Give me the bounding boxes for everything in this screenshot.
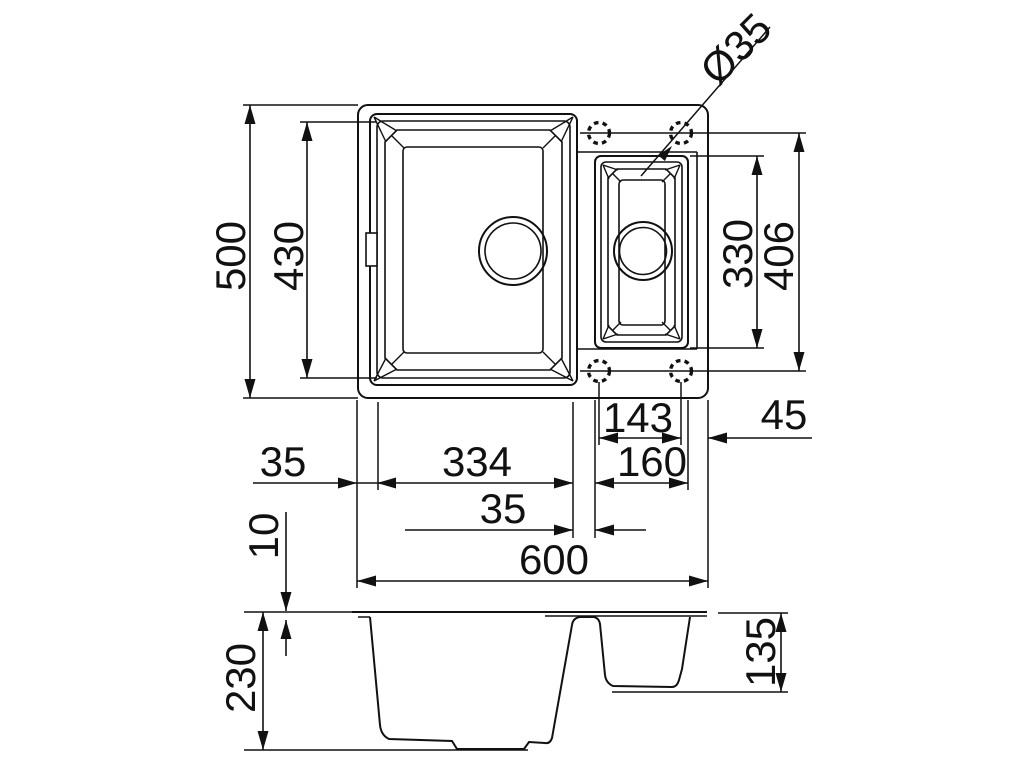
- sink-dimension-drawing: Ø35 500 430 330 406: [0, 0, 1024, 768]
- half-bowl-bottom: [619, 180, 665, 325]
- top-view: Ø35: [358, 4, 780, 398]
- dim-label-tap-span-width: 143: [603, 394, 673, 441]
- dim-bowl-width: 334: [377, 402, 573, 538]
- dim-label-rim-thickness: 10: [240, 513, 287, 560]
- dim-label-half-bowl-length: 330: [714, 219, 761, 289]
- side-view: 10 230 135: [217, 512, 788, 750]
- dim-label-bowl-width: 334: [442, 438, 512, 485]
- main-drain-outer: [479, 217, 547, 285]
- main-bowl-rim-outer: [370, 114, 577, 385]
- sink-outer-edge: [358, 105, 708, 398]
- dim-label-half-bowl-height: 135: [737, 617, 784, 687]
- half-drain-inner: [620, 228, 667, 275]
- main-bowl-bottom: [403, 147, 543, 353]
- dim-total-height: 230: [217, 612, 264, 750]
- dim-label-half-bowl-width: 160: [617, 438, 687, 485]
- dim-label-total-height: 230: [217, 643, 264, 713]
- dim-label-overall-width: 600: [519, 536, 589, 583]
- dim-label-bowl-gap: 35: [480, 485, 527, 532]
- dim-label-overall-depth: 500: [207, 221, 254, 291]
- dim-half-bowl-height: 135: [718, 613, 788, 692]
- rim-bottom-edge: [358, 616, 707, 617]
- main-bowl-slope-top: [385, 130, 562, 370]
- main-bowl: [366, 114, 577, 385]
- dim-left-rim: 35: [253, 438, 377, 485]
- dim-label-bowl-length: 430: [265, 221, 312, 291]
- half-bowl-rim-outer: [595, 156, 688, 348]
- dim-label-tap-span-depth: 406: [755, 221, 802, 291]
- dim-bowl-length: 430: [265, 122, 377, 378]
- main-drain-inner: [485, 223, 541, 279]
- hole-diameter-callout: Ø35: [641, 4, 780, 176]
- drawing-canvas: Ø35 500 430 330 406: [0, 0, 1024, 768]
- dim-edge-to-tap: 45: [708, 391, 812, 438]
- dim-bowl-gap: 35: [405, 485, 646, 532]
- half-drain-outer: [614, 222, 672, 280]
- dim-tap-span-width: 143: [599, 382, 681, 445]
- overflow-slot: [366, 233, 377, 266]
- dim-half-bowl-length: 330: [690, 156, 764, 348]
- dim-label-edge-to-tap: 45: [761, 391, 808, 438]
- dimensions-top-view: 500 430 330 406 143 45: [207, 105, 812, 588]
- bowl-section-profile: [370, 617, 690, 749]
- dim-label-hole-diameter: Ø35: [691, 4, 780, 93]
- half-bowl: [595, 156, 688, 348]
- dim-label-left-rim: 35: [260, 438, 307, 485]
